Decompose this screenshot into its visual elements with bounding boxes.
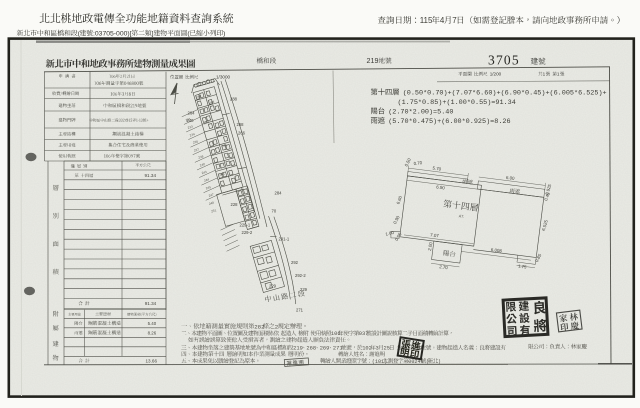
svg-text:A7.: A7. [459, 214, 465, 219]
svg-text:8.26: 8.26 [148, 331, 157, 336]
svg-text:7: 7 [452, 16, 457, 25]
svg-text:(1.75*0.85)+(1.00*0.55)=91.34: (1.75*0.85)+(1.00*0.55)=91.34 [398, 99, 516, 107]
svg-text:106: 106 [331, 331, 341, 337]
svg-text:2: 2 [275, 323, 279, 330]
svg-text:70: 70 [272, 209, 277, 214]
svg-text:271: 271 [333, 346, 343, 352]
svg-text:]: ] [152, 31, 154, 38]
svg-text:91.34: 91.34 [145, 173, 157, 178]
svg-text:1: 1 [543, 72, 546, 77]
svg-text:4: 4 [440, 16, 445, 25]
svg-text:291-1: 291-1 [279, 237, 290, 242]
svg-text:229-2: 229-2 [242, 230, 253, 235]
svg-text:219: 219 [293, 346, 303, 352]
svg-text:91.34: 91.34 [145, 301, 157, 306]
svg-text::03705-000)[: :03705-000)[ [93, 31, 132, 38]
svg-text:228: 228 [231, 202, 239, 207]
svg-text:1: 1 [557, 72, 560, 77]
svg-text:13.66: 13.66 [146, 358, 158, 363]
svg-text:219: 219 [367, 56, 379, 65]
svg-text:115: 115 [420, 16, 433, 25]
svg-text:25: 25 [384, 346, 390, 352]
svg-text:240: 240 [187, 118, 195, 123]
svg-text:268: 268 [306, 346, 316, 352]
svg-text:102: 102 [362, 346, 372, 352]
svg-text:284: 284 [275, 191, 283, 196]
svg-text:264: 264 [188, 111, 196, 116]
svg-text:266: 266 [238, 131, 246, 136]
svg-text:269: 269 [320, 346, 330, 352]
svg-text:229: 229 [269, 284, 277, 289]
svg-text:292-2: 292-2 [295, 273, 306, 278]
svg-text:(5.70*0.475)+(6.00*0.925)=8.26: (5.70*0.475)+(6.00*0.925)=8.26 [388, 118, 510, 126]
svg-text:3: 3 [376, 346, 379, 352]
svg-text:(0.50*0.70)+(7.07*6.60)+(6.90*: (0.50*0.70)+(7.07*6.60)+(6.90*0.45)+(6.0… [403, 90, 607, 98]
svg-text:(: ( [426, 359, 429, 365]
svg-text:292: 292 [291, 260, 299, 265]
svg-text:288: 288 [230, 97, 238, 102]
svg-text:5.40: 5.40 [148, 321, 157, 326]
svg-text:3705: 3705 [488, 53, 520, 68]
svg-text:229-1: 229-1 [240, 223, 251, 228]
svg-text:1/3000: 1/3000 [216, 75, 230, 80]
svg-text:037: 037 [359, 331, 369, 337]
svg-text:): ) [223, 31, 225, 38]
svg-text:271: 271 [296, 308, 304, 313]
svg-text:268: 268 [237, 122, 245, 127]
svg-text:(2.70*2.00)=5.40: (2.70*2.00)=5.40 [388, 109, 453, 117]
svg-text:282: 282 [254, 323, 265, 330]
svg-text:1/200: 1/200 [490, 72, 502, 77]
svg-text:(101): (101) [372, 359, 387, 365]
svg-text:): ) [438, 359, 441, 365]
